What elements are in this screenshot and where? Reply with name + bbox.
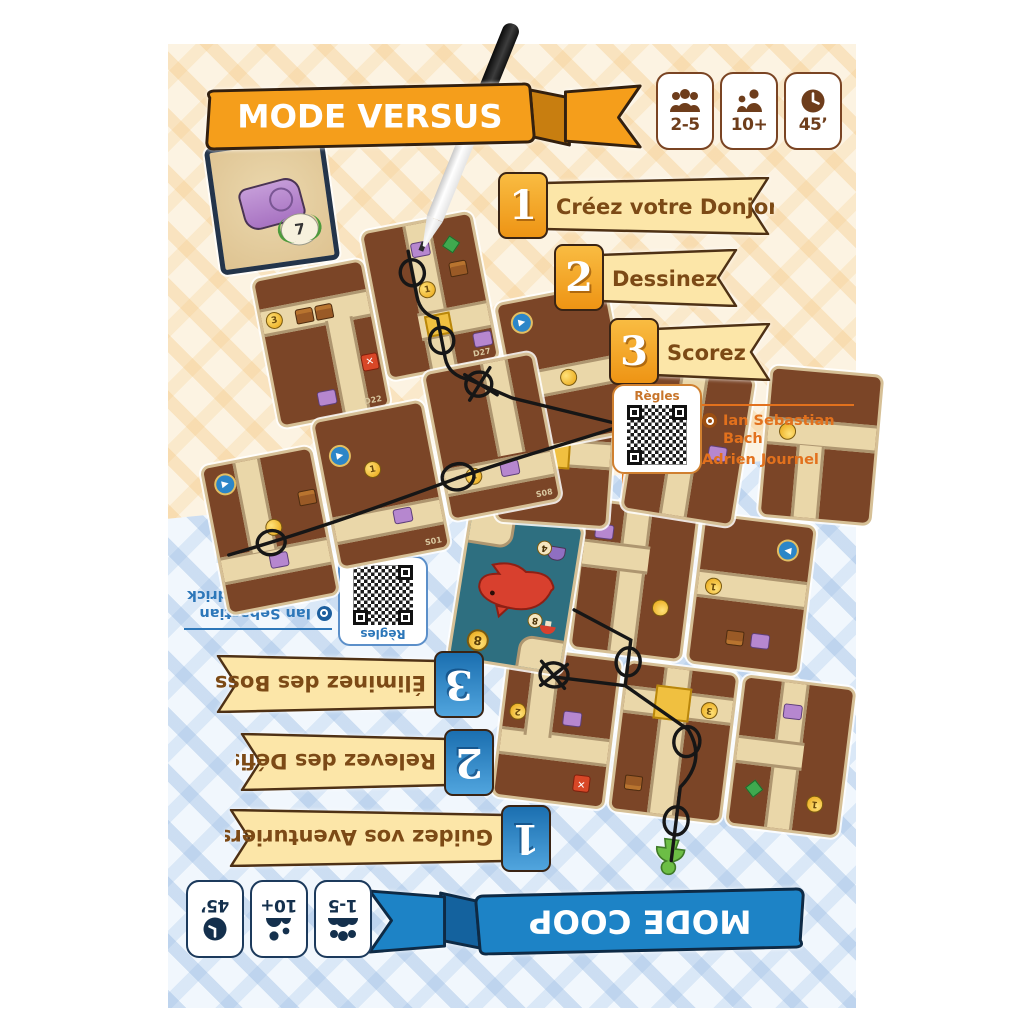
players-badge: 2-5 — [656, 72, 714, 150]
time-value: 45’ — [799, 115, 828, 135]
dungeon-tile: ▶ 1 S01 — [311, 399, 452, 570]
chest-icon — [725, 630, 745, 647]
boss-coin-badge: 8 — [465, 628, 490, 653]
versus-banner: MODE VERSUS — [196, 78, 648, 153]
players-count: 1-5 — [328, 896, 357, 916]
coop-badges: 1-5 10+ 45’ — [186, 880, 372, 958]
step-ribbon: Dessinez — [590, 249, 742, 307]
coin-icon: 2 — [508, 702, 527, 721]
scroll-icon — [316, 389, 338, 407]
credits-rule — [184, 628, 332, 630]
banner-tail — [370, 891, 445, 952]
age-icon — [264, 917, 294, 943]
step-number: 2 — [444, 729, 494, 796]
step-label: Dessinez — [612, 267, 717, 291]
step-ribbon: Créez votre Donjon — [534, 177, 774, 235]
hazard-icon: ✕ — [572, 774, 591, 793]
step-ribbon: Scorez — [645, 323, 775, 381]
scroll-icon — [782, 703, 803, 720]
gold-zone — [652, 685, 692, 723]
coop-banner-title: MODE COOP — [529, 903, 752, 941]
score-card: 7 — [204, 132, 341, 275]
start-compass-icon: ▶ — [509, 310, 535, 336]
coin-icon: 1 — [363, 459, 383, 479]
step-ribbon: Éliminez des Boss — [212, 655, 448, 713]
scroll-icon — [562, 710, 583, 727]
credits-rule — [702, 404, 854, 406]
step-number: 1 — [501, 805, 551, 872]
banner-fold — [441, 893, 480, 948]
gem-icon — [442, 235, 460, 253]
corridor — [497, 726, 612, 767]
scroll-icon — [472, 330, 494, 348]
step-label: Créez votre Donjon — [556, 195, 774, 219]
step-label: Éliminez des Boss — [215, 671, 426, 696]
rules-qr-card: Règles — [338, 556, 428, 646]
versus-credits: Ian Sebastian Bach Adrien Journel — [702, 404, 854, 472]
age-icon — [734, 88, 764, 114]
dungeon-tile: 3 — [608, 660, 740, 825]
gem-icon — [745, 780, 763, 798]
step-number: 3 — [434, 651, 484, 718]
versus-badges: 2-5 10+ 45’ — [656, 72, 842, 150]
step-ribbon: Relevez des Défis — [236, 733, 458, 791]
age-badge: 10+ — [250, 880, 308, 958]
rules-qr-code — [627, 405, 687, 465]
adventurer-meeple — [650, 836, 688, 878]
coin-icon: 1 — [805, 795, 824, 814]
designer-icon — [702, 413, 717, 428]
players-icon — [669, 88, 701, 114]
start-compass-icon: ▶ — [327, 443, 353, 469]
players-icon — [327, 917, 359, 943]
qr-finder — [353, 610, 368, 625]
qr-finder — [627, 405, 642, 420]
qr-finder — [398, 565, 413, 580]
tile-label: S08 — [535, 487, 553, 499]
step-number: 1 — [498, 172, 548, 239]
age-value: 10+ — [261, 896, 297, 916]
box-back: 1 D27 3 ✕ D22 ▶ 1 S08 — [0, 0, 1024, 1024]
time-badge: 45’ — [784, 72, 842, 150]
chest-icon — [448, 259, 469, 277]
time-icon — [799, 88, 827, 114]
banner-tail — [565, 86, 640, 147]
dragon-illustration — [463, 553, 564, 629]
banner-fold — [530, 90, 569, 145]
tile-label: D22 — [363, 394, 382, 406]
step-number: 2 — [554, 244, 604, 311]
chest-icon — [297, 488, 318, 506]
chest-icon — [624, 774, 644, 791]
hazard-icon: ✕ — [360, 352, 380, 372]
scroll-icon — [750, 633, 771, 650]
illustrator-name: Adrien Journel — [702, 451, 819, 469]
qr-finder — [672, 405, 687, 420]
credit-row: Adrien Journel — [702, 451, 854, 469]
mushroom-icon — [539, 625, 556, 635]
designer-icon — [317, 606, 332, 621]
coin-icon — [651, 598, 670, 617]
tile-label: S01 — [424, 535, 442, 547]
rules-label: Règles — [360, 627, 405, 641]
step-number: 3 — [609, 318, 659, 385]
rules-label: Règles — [634, 389, 679, 403]
players-count: 2-5 — [670, 115, 699, 135]
time-value: 45’ — [201, 896, 230, 916]
age-badge: 10+ — [720, 72, 778, 150]
rules-qr-code — [353, 565, 413, 625]
qr-finder — [627, 450, 642, 465]
step-label: Guidez vos Aventuriers — [225, 825, 493, 849]
dungeon-tile: 1 — [725, 674, 857, 839]
coop-banner: MODE COOP — [362, 885, 814, 960]
time-badge: 45’ — [186, 880, 244, 958]
versus-banner-title: MODE VERSUS — [237, 97, 502, 135]
qr-finder — [398, 610, 413, 625]
dungeon-tile: ▶ 1 — [685, 512, 817, 677]
step-ribbon: Guidez vos Aventuriers — [225, 809, 515, 867]
start-compass-icon: ▶ — [776, 538, 801, 563]
tile-label: D27 — [472, 346, 491, 358]
credit-row: Ian Sebastian Bach — [702, 412, 854, 448]
corridor — [480, 357, 526, 457]
rules-qr-card: Règles — [612, 384, 702, 474]
designer-name: Ian Sebastian Bach — [723, 412, 854, 448]
step-label: Relevez des Défis — [236, 749, 436, 773]
corridor — [232, 456, 277, 554]
time-icon — [201, 917, 229, 943]
step-label: Scorez — [667, 341, 746, 365]
players-badge: 1-5 — [314, 880, 372, 958]
age-value: 10+ — [731, 115, 767, 135]
